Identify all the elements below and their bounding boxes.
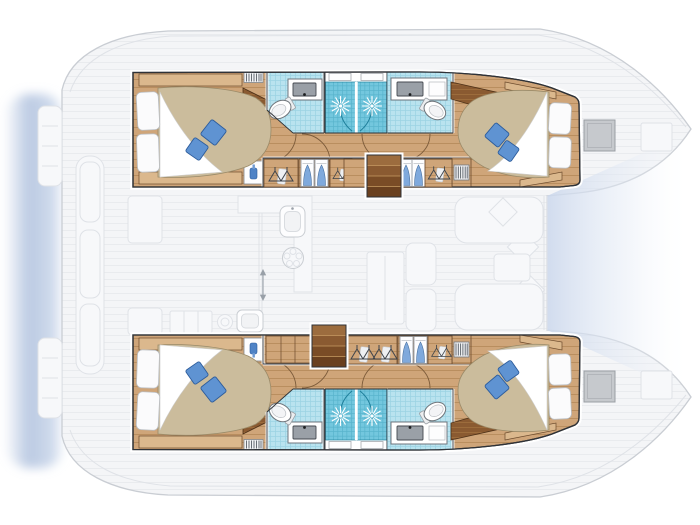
coffee-table	[494, 254, 530, 281]
drape-panel	[301, 160, 314, 187]
wardrobes-bottom-hull	[266, 336, 452, 364]
bow-hatch-top	[584, 120, 615, 151]
stairs-bottom-hull	[311, 324, 347, 368]
bow-hatch-bottom	[584, 371, 615, 402]
galley-sink	[280, 206, 305, 237]
drape-panel	[414, 337, 427, 364]
drape-panel	[315, 160, 328, 187]
round-vent	[218, 315, 233, 330]
cockpit-table	[128, 196, 162, 243]
drape-panel	[400, 337, 413, 364]
stove	[283, 248, 304, 269]
stairs-top-hull	[366, 154, 402, 198]
anchor-locker-top	[641, 123, 672, 151]
sofa-cushion	[406, 243, 436, 285]
wardrobes-top-hull	[264, 159, 452, 187]
cabinet	[266, 336, 310, 363]
cabinet	[344, 159, 366, 187]
sofa-cushion	[406, 289, 436, 331]
catamaran-floor-plan: Catamaran 4-cabin interior layout plan (…	[0, 0, 700, 525]
cockpit-table	[128, 308, 162, 335]
drape-panel	[412, 160, 425, 187]
anchor-locker-bottom	[641, 371, 672, 399]
floor-plan-svg: Catamaran 4-cabin interior layout plan (…	[0, 0, 700, 525]
